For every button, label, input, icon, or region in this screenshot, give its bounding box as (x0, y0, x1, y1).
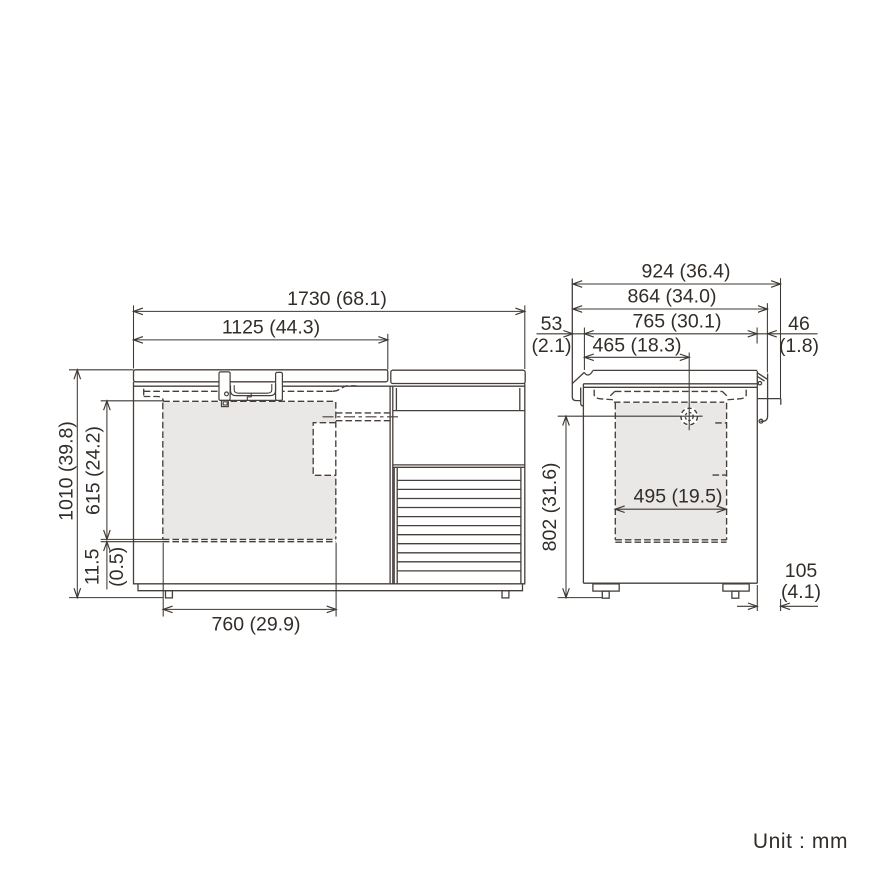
svg-text:(4.1): (4.1) (781, 581, 821, 603)
svg-text:(0.5): (0.5) (106, 547, 128, 587)
svg-text:802 (31.6): 802 (31.6) (539, 462, 561, 551)
svg-text:1125 (44.3): 1125 (44.3) (222, 316, 320, 338)
svg-text:615 (24.2): 615 (24.2) (83, 426, 105, 515)
svg-text:Unit : mm: Unit : mm (753, 830, 848, 853)
svg-text:924 (36.4): 924 (36.4) (642, 261, 731, 283)
svg-text:46: 46 (788, 313, 810, 335)
svg-text:53: 53 (541, 313, 563, 335)
svg-text:465 (18.3): 465 (18.3) (593, 335, 682, 357)
svg-text:(2.1): (2.1) (531, 335, 571, 357)
svg-text:11.5: 11.5 (82, 548, 104, 585)
svg-text:760 (29.9): 760 (29.9) (212, 613, 301, 635)
svg-text:495 (19.5): 495 (19.5) (634, 486, 723, 508)
svg-text:1730 (68.1): 1730 (68.1) (287, 288, 387, 310)
svg-text:864 (34.0): 864 (34.0) (628, 286, 717, 308)
svg-text:105: 105 (785, 560, 818, 582)
svg-text:765 (30.1): 765 (30.1) (633, 310, 722, 332)
svg-text:(1.8): (1.8) (779, 335, 819, 357)
svg-text:1010 (39.8): 1010 (39.8) (56, 421, 78, 521)
